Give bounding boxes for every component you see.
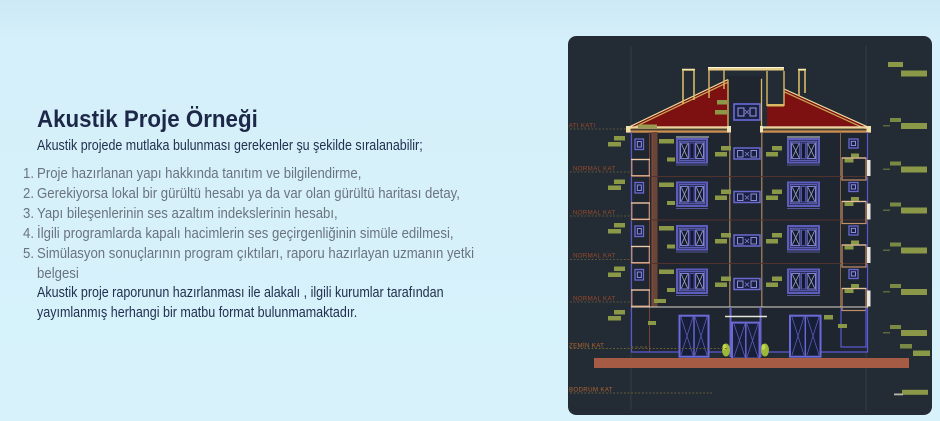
- svg-text:ÇATI KATI: ÇATI KATI: [568, 123, 595, 130]
- svg-text:NORMAL KAT: NORMAL KAT: [573, 296, 616, 303]
- svg-text:BODRUM KAT: BODRUM KAT: [569, 387, 613, 394]
- svg-text:NORMAL KAT: NORMAL KAT: [573, 166, 616, 173]
- svg-text:NORMAL KAT: NORMAL KAT: [573, 210, 616, 217]
- svg-text:NORMAL KAT: NORMAL KAT: [573, 253, 616, 260]
